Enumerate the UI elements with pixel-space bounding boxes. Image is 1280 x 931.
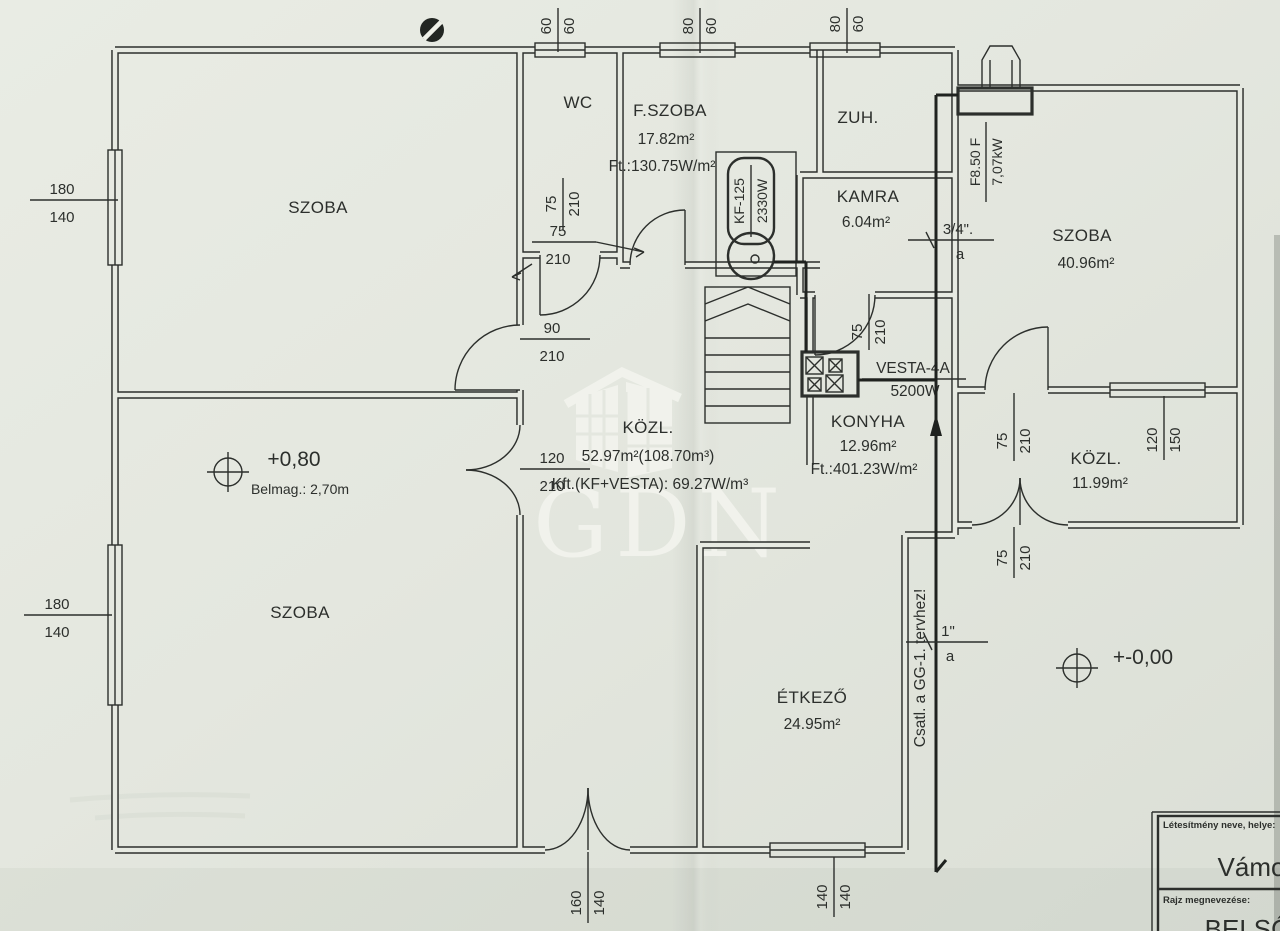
svg-text:120: 120 <box>1144 427 1161 452</box>
svg-text:140: 140 <box>591 890 608 915</box>
svg-text:210: 210 <box>1017 545 1034 570</box>
paper-shadow <box>0 868 1280 931</box>
svg-text:120: 120 <box>539 450 564 467</box>
level-note: Belmag.: 2,70m <box>251 481 349 497</box>
svg-text:140: 140 <box>814 884 831 909</box>
svg-text:140: 140 <box>44 624 69 641</box>
room-area-etkezo: 24.95m² <box>784 716 841 733</box>
svg-text:210: 210 <box>566 191 583 216</box>
svg-text:210: 210 <box>872 319 889 344</box>
svg-text:80: 80 <box>680 18 697 35</box>
svg-text:180: 180 <box>44 596 69 613</box>
drain-symbol <box>420 18 444 42</box>
stove-model: VESTA-4A <box>876 360 950 377</box>
room-label-wc: WC <box>563 93 592 112</box>
svg-text:210: 210 <box>539 478 564 495</box>
svg-text:160: 160 <box>568 890 585 915</box>
room-label-zuh: ZUH. <box>837 108 878 127</box>
room-label-szoba-r: SZOBA <box>1052 226 1112 245</box>
level-value: +-0,00 <box>1113 646 1173 669</box>
svg-text:75: 75 <box>849 324 866 341</box>
svg-text:180: 180 <box>49 181 74 198</box>
svg-text:60: 60 <box>703 18 720 35</box>
room-label-kamra: KAMRA <box>837 187 900 206</box>
room-label-etkezo: ÉTKEZŐ <box>777 688 847 707</box>
floorplan-scan: GDN F8.5 <box>0 0 1280 931</box>
svg-text:60: 60 <box>561 18 578 35</box>
radiator-model: F8.50 F <box>967 138 983 186</box>
svg-text:140: 140 <box>837 884 854 909</box>
pipe-size: 1" <box>941 623 955 640</box>
svg-text:210: 210 <box>1017 428 1034 453</box>
room-area-kamra: 6.04m² <box>842 214 890 231</box>
boiler-power: 2330W <box>754 178 770 223</box>
room-label-konyha: KONYHA <box>831 412 905 431</box>
pipe-size: 3/4". <box>943 221 973 238</box>
svg-text:80: 80 <box>827 16 844 33</box>
pipe-note: Csatl. a GG-1. tervhez! <box>912 589 929 748</box>
room-heat-fszoba: Ft.:130.75W/m² <box>609 158 716 175</box>
room-area-kozl-r: 11.99m² <box>1072 475 1128 492</box>
floorplan-drawing: GDN F8.5 <box>0 0 1280 931</box>
room-label-kozl-c: KÖZL. <box>622 418 673 437</box>
room-area-fszoba: 17.82m² <box>638 131 695 148</box>
level-value: +0,80 <box>267 448 320 471</box>
room-heat-konyha: Ft.:401.23W/m² <box>811 461 918 478</box>
svg-text:210: 210 <box>545 251 570 268</box>
svg-text:Csatl. a GG-1. tervhez!: Csatl. a GG-1. tervhez! <box>912 589 929 748</box>
boiler-model: KF-125 <box>731 178 747 224</box>
svg-text:75: 75 <box>550 223 567 240</box>
titleblock-field-label: Rajz megnevezése: <box>1163 895 1250 906</box>
svg-text:75: 75 <box>543 196 560 213</box>
svg-text:140: 140 <box>49 209 74 226</box>
svg-text:90: 90 <box>544 320 561 337</box>
titleblock-site-name: Vámos <box>1218 852 1280 882</box>
room-label-szoba-tl: SZOBA <box>288 198 348 217</box>
svg-text:210: 210 <box>539 348 564 365</box>
radiator-power: 7,07kW <box>989 137 1005 185</box>
room-heat-kozl-c: Kft.(KF+VESTA): 69.27W/m³ <box>552 476 749 493</box>
pipe-line: a <box>946 648 955 665</box>
stove-power: 5200W <box>890 383 939 400</box>
svg-text:60: 60 <box>850 16 867 33</box>
room-area-konyha: 12.96m² <box>840 438 897 455</box>
titleblock-field-label: Létesítmény neve, helye: <box>1163 820 1275 831</box>
svg-text:75: 75 <box>994 550 1011 567</box>
titleblock-drawing-name: BELSŐ <box>1205 914 1280 931</box>
svg-text:60: 60 <box>538 18 555 35</box>
svg-text:150: 150 <box>1167 427 1184 452</box>
room-area-szoba-r: 40.96m² <box>1058 255 1115 272</box>
room-label-szoba-bl: SZOBA <box>270 603 330 622</box>
svg-text:75: 75 <box>994 433 1011 450</box>
room-label-fszoba: F.SZOBA <box>633 101 707 120</box>
room-label-kozl-r: KÖZL. <box>1070 449 1121 468</box>
pipe-line: a <box>956 246 965 263</box>
room-area-kozl-c: 52.97m²(108.70m³) <box>582 448 715 465</box>
